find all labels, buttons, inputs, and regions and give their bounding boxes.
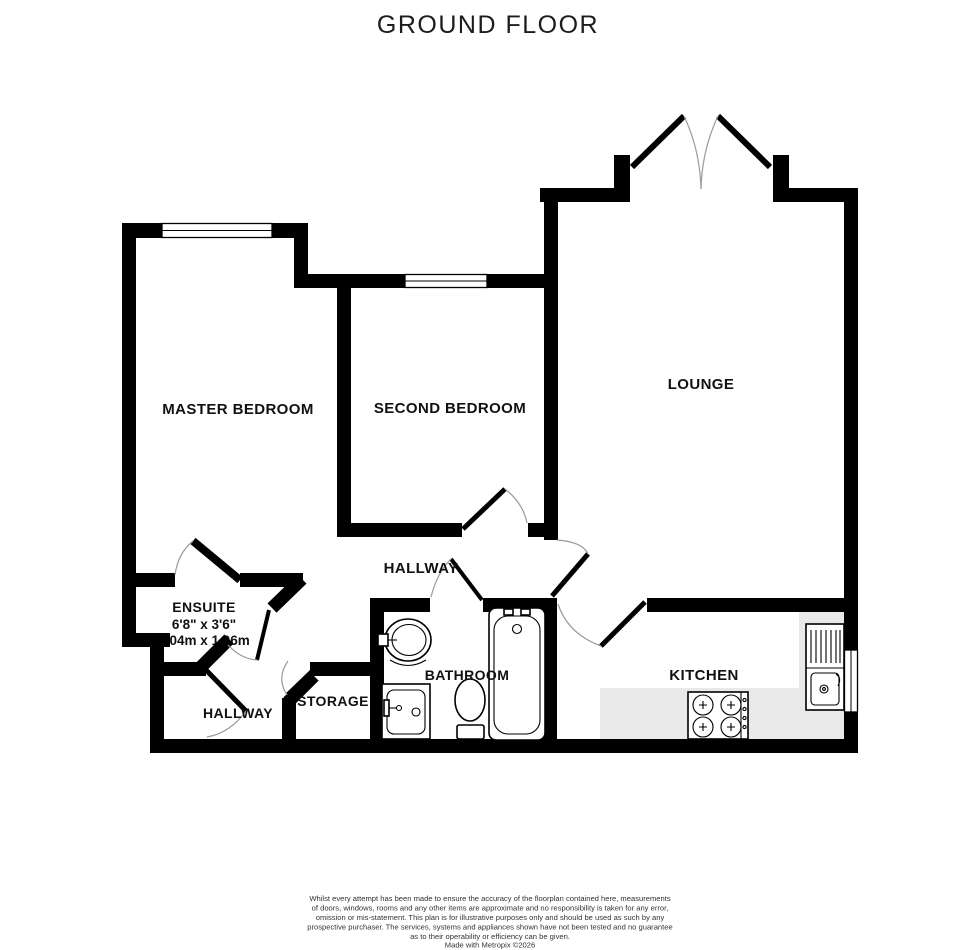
wall-frenchdoor-post-right (773, 155, 789, 202)
footer-line-2: of doors, windows, rooms and any other i… (312, 904, 669, 913)
ensuite-dims-metric: 2.04m x 1.06m (158, 633, 250, 648)
ensuite-label: ENSUITE (172, 599, 235, 615)
storage-label: STORAGE (297, 693, 369, 709)
kitchen-sink (806, 624, 844, 710)
wall-master-bottom-left (122, 573, 175, 587)
lounge-label: LOUNGE (668, 376, 735, 393)
ensuite-label-group: ENSUITE 6'8" x 3'6" 2.04m x 1.06m (158, 599, 250, 648)
wall-frenchdoor-post-left (614, 155, 630, 202)
kitchen-door (558, 602, 645, 646)
ensuite-dims-imperial: 6'8" x 3'6" (172, 617, 236, 632)
master-ensuite-door (175, 541, 240, 580)
master-bedroom-label: MASTER BEDROOM (162, 401, 313, 418)
second-bedroom-door (463, 489, 527, 529)
floorplan-page: GROUND FLOOR ENSUITE 6'8" x 3'6" 2.04m x… (0, 0, 980, 950)
wall-secondbed-bottom-stub (528, 523, 558, 537)
lounge-door (552, 540, 588, 596)
shower (382, 684, 430, 739)
wall-bathroom-top-left (384, 598, 430, 612)
wall-secondbed-bottom (351, 523, 462, 537)
wall-lounge-left (544, 188, 558, 540)
kitchen-label: KITCHEN (669, 667, 738, 684)
kitchen-window (845, 650, 858, 712)
french-doors (632, 116, 770, 189)
toilet (455, 679, 485, 739)
wall-storage-top (310, 662, 384, 676)
second-bedroom-window (405, 275, 487, 288)
bathroom-label: BATHROOM (425, 667, 510, 683)
footer-line-3: omission or mis-statement. This plan is … (316, 913, 665, 922)
floorplan-svg: GROUND FLOOR ENSUITE 6'8" x 3'6" 2.04m x… (0, 0, 980, 950)
second-bedroom-label: SECOND BEDROOM (374, 400, 526, 417)
footer-line-1: Whilst every attempt has been made to en… (309, 894, 671, 903)
doors (175, 116, 770, 737)
basin (378, 619, 431, 666)
room-labels: MASTER BEDROOM SECOND BEDROOM LOUNGE HAL… (162, 376, 738, 721)
master-window (162, 224, 272, 238)
front-door (206, 670, 246, 737)
hallway-lower-label: HALLWAY (203, 705, 273, 721)
hallway-upper-label: HALLWAY (384, 560, 459, 577)
footer-disclaimer: Whilst every attempt has been made to en… (307, 894, 672, 950)
footer-line-6: Made with Metropix ©2026 (445, 941, 535, 950)
wall-bedroom-divider (337, 288, 351, 537)
page-title: GROUND FLOOR (377, 11, 599, 39)
footer-line-4: prospective purchaser. The services, sys… (307, 923, 672, 932)
wall-kitchen-top (647, 598, 844, 612)
wall-bottom (150, 739, 858, 753)
hob (688, 692, 748, 739)
